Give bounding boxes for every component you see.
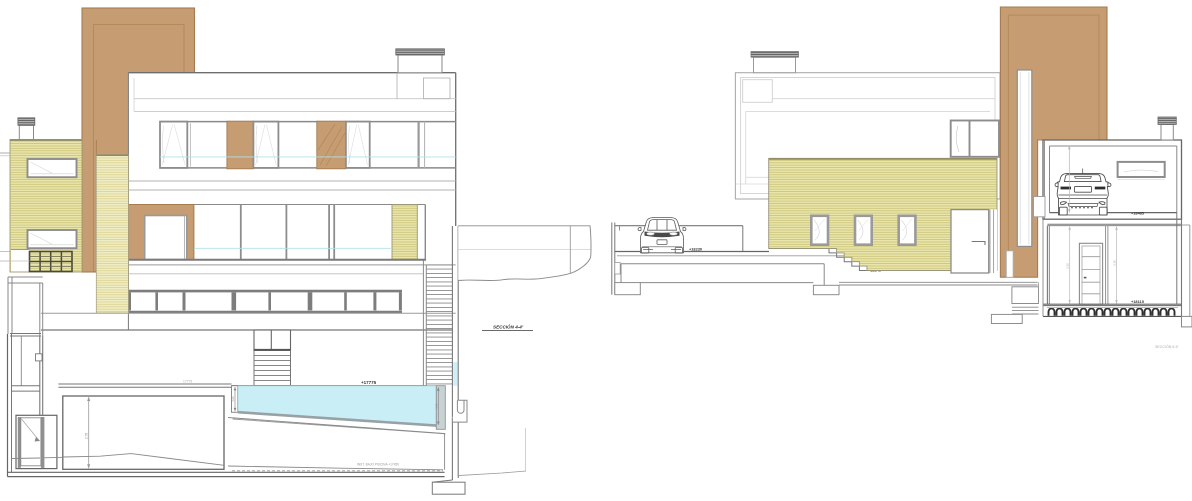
svg-text:1.40: 1.40 — [434, 403, 438, 409]
svg-text:2.30: 2.30 — [1113, 260, 1117, 266]
svg-text:+18115: +18115 — [1131, 299, 1145, 304]
svg-text:1.06: 1.06 — [231, 396, 235, 402]
svg-text:+18230: +18230 — [689, 246, 702, 251]
svg-text:SECCIÓN 5-5’: SECCIÓN 5-5’ — [1155, 344, 1179, 349]
svg-text:2.30: 2.30 — [1066, 263, 1070, 269]
svg-text:17775: 17775 — [183, 380, 192, 384]
svg-text:+17775: +17775 — [361, 380, 377, 385]
svg-text:SECCIÓN 4-4’: SECCIÓN 4-4’ — [493, 323, 524, 329]
svg-text:+18485: +18485 — [1131, 210, 1145, 215]
svg-text:2.76: 2.76 — [85, 433, 89, 439]
svg-text:INST. BAJO PISCINA +17450: INST. BAJO PISCINA +17450 — [357, 463, 399, 467]
